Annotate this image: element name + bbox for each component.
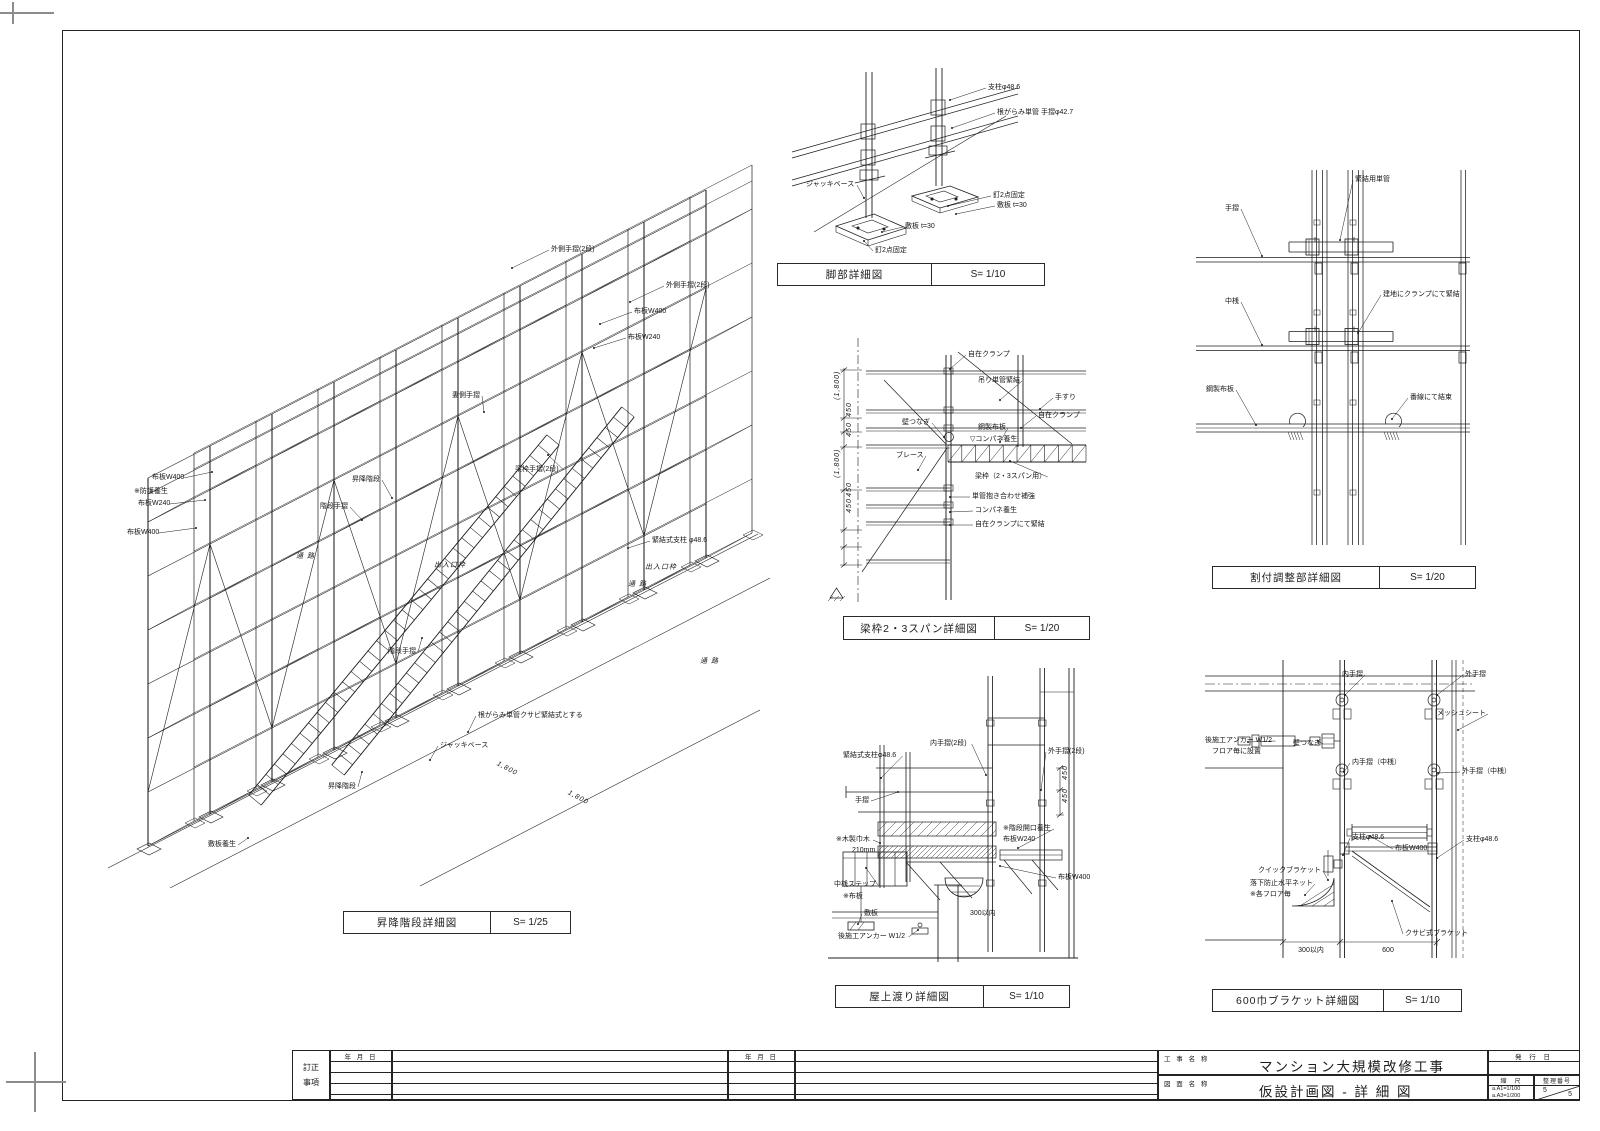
serial-number-bottom: 5 xyxy=(1568,1091,1572,1098)
project-name: マンション大規模改修工事 xyxy=(1259,1055,1445,1075)
issue-date-cell: 発 行 日 xyxy=(1488,1050,1580,1075)
revision-desc-column-2 xyxy=(795,1050,1158,1100)
revision-date-column-2: 年 月 日 xyxy=(728,1050,795,1100)
issue-date-label: 発 行 日 xyxy=(1489,1051,1579,1062)
drawing-sheet: 昇降階段詳細図S= 1/25外側手摺(2段)外側手摺(2段)布板W400布板W2… xyxy=(0,0,1600,1131)
revision-desc-column xyxy=(392,1050,728,1100)
scale-cell: 縮 尺 a.A1=1/100 a.A3=1/200 xyxy=(1488,1075,1534,1100)
title-block: 訂正 事項 年 月 日 年 月 日 工 事 名 称 マンション大規模改修工事 xyxy=(0,0,1600,1131)
date-header: 年 月 日 xyxy=(331,1051,391,1061)
serial-diagonal xyxy=(1535,1085,1580,1100)
revision-label-top: 訂正 xyxy=(303,1062,319,1073)
date-header: 年 月 日 xyxy=(729,1051,794,1061)
drawing-name: 仮設計画図 - 詳 細 図 xyxy=(1259,1080,1413,1100)
revision-date-column: 年 月 日 xyxy=(330,1050,392,1100)
serial-number-top: 5 xyxy=(1543,1087,1547,1094)
scale-label: 縮 尺 xyxy=(1489,1076,1533,1086)
serial-number-cell: 整理番号 5 5 xyxy=(1534,1075,1580,1100)
scale-value-a3: a.A3=1/200 xyxy=(1489,1093,1533,1100)
scale-value-a1: a.A1=1/100 xyxy=(1489,1086,1533,1093)
drawing-name-cell: 図 面 名 称 仮設計画図 - 詳 細 図 xyxy=(1158,1075,1488,1100)
revision-header-cell: 訂正 事項 xyxy=(292,1050,330,1100)
drawing-name-label: 図 面 名 称 xyxy=(1164,1078,1209,1088)
project-name-cell: 工 事 名 称 マンション大規模改修工事 xyxy=(1158,1050,1488,1075)
project-name-label: 工 事 名 称 xyxy=(1164,1053,1209,1063)
revision-label-bottom: 事項 xyxy=(303,1077,319,1088)
